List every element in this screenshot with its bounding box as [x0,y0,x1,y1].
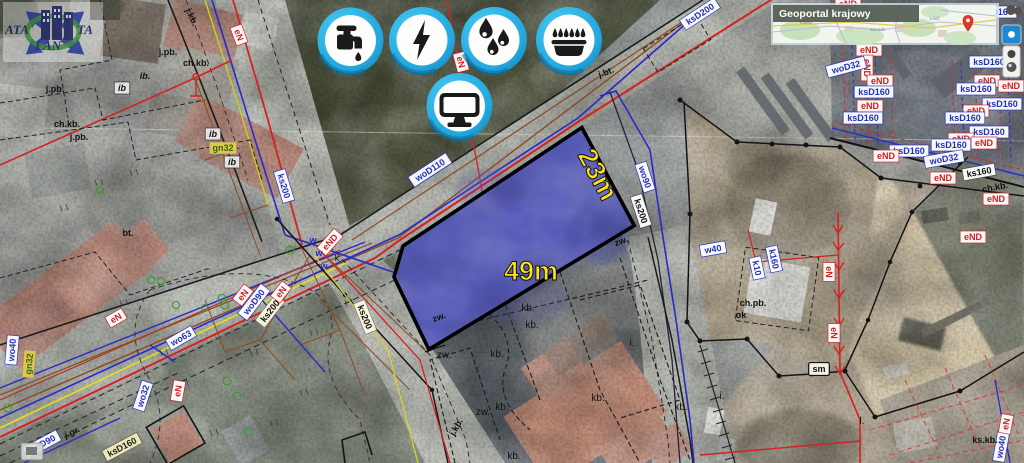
svg-text:kb.: kb. [495,402,508,413]
svg-text:LAN: LAN [34,38,62,53]
svg-text:ch.kb.: ch.kb. [54,119,80,129]
svg-text:eN: eN [172,384,184,397]
svg-text:Geoportal krajowy: Geoportal krajowy [779,8,871,20]
svg-text:kb.: kb. [591,393,604,404]
svg-text:j.pb.: j.pb. [45,84,65,94]
svg-text:ch.pb.: ch.pb. [740,298,767,308]
svg-text:TA: TA [77,22,93,37]
svg-text:ksD160: ksD160 [986,99,1018,109]
svg-text:ib: ib [118,83,127,93]
svg-text:wo40: wo40 [6,338,18,362]
svg-text:w: w [319,261,328,271]
svg-text:eND: eND [860,45,879,55]
svg-text:ksD160: ksD160 [973,127,1005,137]
svg-text:ks.kb.: ks.kb. [972,435,998,445]
svg-text:ksD160: ksD160 [949,113,981,123]
svg-text:i.: i. [720,391,725,402]
svg-text:k: k [335,253,340,263]
svg-text:eND: eND [1002,81,1021,91]
svg-text:w: w [314,248,323,258]
svg-text:eND: eND [871,76,890,86]
svg-text:gn32: gn32 [23,353,35,375]
svg-text:ATA: ATA [4,22,29,37]
svg-text:gn32: gn32 [212,143,233,153]
svg-text:Łódź: Łódź [930,16,941,21]
svg-text:ib: ib [228,157,237,167]
svg-text:eN: eN [824,266,834,278]
svg-text:kb.: kb. [674,402,687,413]
svg-text:kb.: kb. [521,303,534,314]
svg-text:ksD160: ksD160 [935,140,967,150]
svg-text:kb.: kb. [525,320,538,331]
svg-text:j.pb.: j.pb. [158,47,178,57]
svg-text:ib: ib [209,129,218,139]
svg-text:l.: l. [860,416,865,427]
svg-text:zw.: zw. [437,350,451,361]
svg-text:eND: eND [987,194,1006,204]
svg-text:i.: i. [630,338,635,349]
svg-text:kb.: kb. [490,349,503,360]
svg-text:bt.: bt. [122,228,133,238]
svg-text:kb.: kb. [507,451,520,462]
svg-text:j.pb.: j.pb. [69,132,89,142]
svg-text:ksD160: ksD160 [973,57,1005,67]
svg-text:w: w [308,235,317,245]
svg-text:eN: eN [829,327,839,339]
svg-text:ib.: ib. [140,71,151,81]
svg-text:eND: eND [877,151,896,161]
svg-text:ok: ok [736,310,748,320]
svg-text:eND: eND [934,173,953,183]
svg-text:49m: 49m [504,256,558,286]
svg-text:eND: eND [975,138,994,148]
svg-text:eN: eN [1000,417,1012,430]
svg-text:ch.kb.: ch.kb. [183,58,209,68]
svg-text:Sieradz: Sieradz [870,27,886,32]
svg-text:ksD160: ksD160 [858,87,890,97]
svg-text:eND: eND [964,232,983,242]
svg-text:ksD160: ksD160 [960,84,992,94]
svg-text:sm: sm [812,364,825,374]
svg-text:zw.: zw. [476,407,490,418]
svg-text:ksD160: ksD160 [847,113,879,123]
svg-text:eND: eND [861,101,880,111]
